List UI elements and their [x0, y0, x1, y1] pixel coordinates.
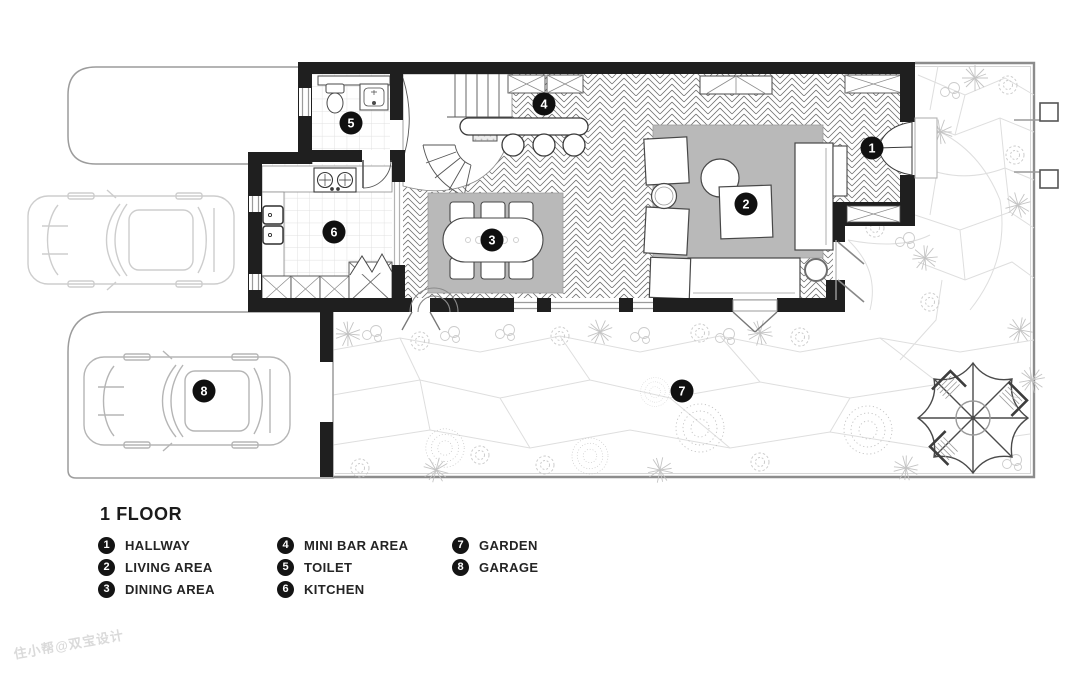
svg-text:1: 1 [869, 142, 876, 156]
legend-label: LIVING AREA [125, 560, 213, 575]
badge-toilet: 5 [340, 112, 363, 135]
armchair [644, 207, 689, 255]
bar-stool [502, 134, 524, 156]
car-street [28, 190, 234, 290]
lounge-chair [649, 257, 690, 298]
legend-badge: 2 [98, 559, 115, 576]
svg-text:4: 4 [541, 98, 548, 112]
svg-text:2: 2 [743, 198, 750, 212]
toilet-sink [360, 84, 388, 110]
legend-item-garden: 7 GARDEN [452, 536, 538, 554]
legend-badge: 6 [277, 581, 294, 598]
bar-counter [460, 118, 588, 135]
badge-kitchen: 6 [323, 221, 346, 244]
legend-item-kitchen: 6 KITCHEN [277, 580, 365, 598]
sofa-right [795, 143, 833, 250]
hallway-console [833, 146, 847, 196]
legend-item-hallway: 1 HALLWAY [98, 536, 190, 554]
badge-garage: 8 [193, 380, 216, 403]
legend-badge: 8 [452, 559, 469, 576]
car-garage [84, 351, 290, 451]
legend-label: GARDEN [479, 538, 538, 553]
bar-stool [533, 134, 555, 156]
legend-item-mini-bar-area: 4 MINI BAR AREA [277, 536, 408, 554]
legend-label: HALLWAY [125, 538, 190, 553]
legend-badge: 1 [98, 537, 115, 554]
legend-badge: 3 [98, 581, 115, 598]
badge-dining-area: 3 [481, 229, 504, 252]
svg-text:6: 6 [331, 226, 338, 240]
wc [326, 84, 344, 113]
garden-umbrella [918, 363, 1028, 473]
armchair [644, 137, 689, 185]
bar-stool [563, 134, 585, 156]
driveway [68, 67, 312, 164]
badge-hallway: 1 [861, 137, 884, 160]
ottoman-stool [805, 259, 827, 281]
svg-text:7: 7 [679, 385, 686, 399]
floor-plan-page: 1 2 3 4 5 6 7 8 1 FLOOR [0, 0, 1080, 684]
legend-label: GARAGE [479, 560, 538, 575]
legend-title: 1 FLOOR [100, 504, 182, 525]
sofa-bottom [688, 258, 800, 300]
legend-item-dining-area: 3 DINING AREA [98, 580, 215, 598]
badge-mini-bar-area: 4 [533, 93, 556, 116]
legend-item-living-area: 2 LIVING AREA [98, 558, 213, 576]
badge-garden: 7 [671, 380, 694, 403]
legend-label: KITCHEN [304, 582, 365, 597]
legend-badge: 5 [277, 559, 294, 576]
badge-living-area: 2 [735, 193, 758, 216]
legend-item-toilet: 5 TOILET [277, 558, 352, 576]
svg-text:5: 5 [348, 117, 355, 131]
stove [314, 168, 356, 192]
legend-label: DINING AREA [125, 582, 215, 597]
svg-text:3: 3 [489, 234, 496, 248]
svg-text:8: 8 [201, 385, 208, 399]
legend-label: MINI BAR AREA [304, 538, 408, 553]
legend-badge: 4 [277, 537, 294, 554]
fence-gate-posts [1014, 103, 1058, 188]
legend-label: TOILET [304, 560, 352, 575]
legend-badge: 7 [452, 537, 469, 554]
legend-item-garage: 8 GARAGE [452, 558, 538, 576]
